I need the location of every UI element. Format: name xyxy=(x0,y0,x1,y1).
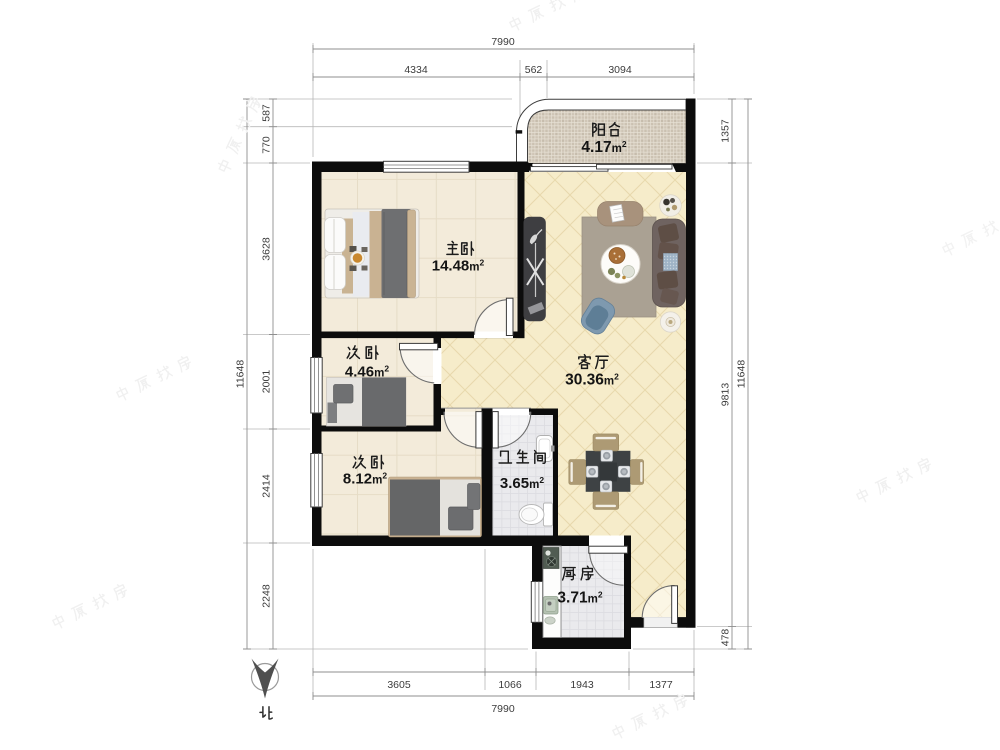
svg-text:7990: 7990 xyxy=(491,703,515,715)
svg-text:11648: 11648 xyxy=(736,360,748,389)
svg-text:2001: 2001 xyxy=(261,370,273,394)
svg-text:4334: 4334 xyxy=(404,64,428,76)
svg-text:770: 770 xyxy=(261,136,273,154)
svg-text:1377: 1377 xyxy=(649,679,673,691)
svg-text:587: 587 xyxy=(261,104,273,122)
svg-text:9813: 9813 xyxy=(720,383,732,407)
svg-text:2414: 2414 xyxy=(261,474,273,498)
svg-text:1357: 1357 xyxy=(720,119,732,143)
svg-text:7990: 7990 xyxy=(491,36,515,48)
svg-text:2248: 2248 xyxy=(261,584,273,608)
svg-text:3628: 3628 xyxy=(261,237,273,261)
svg-text:1943: 1943 xyxy=(570,679,594,691)
svg-text:3094: 3094 xyxy=(608,64,632,76)
svg-text:478: 478 xyxy=(720,629,732,647)
svg-text:11648: 11648 xyxy=(235,360,247,389)
svg-text:3605: 3605 xyxy=(387,679,411,691)
svg-text:1066: 1066 xyxy=(498,679,522,691)
svg-text:562: 562 xyxy=(525,64,543,76)
